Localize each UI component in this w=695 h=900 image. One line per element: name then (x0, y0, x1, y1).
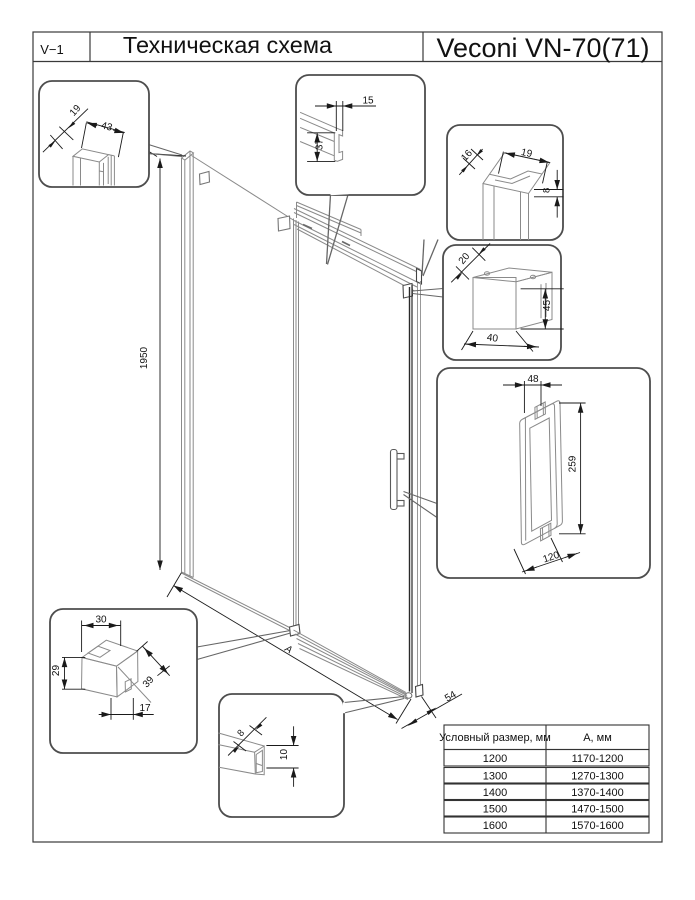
svg-text:259: 259 (568, 455, 579, 472)
svg-text:А, мм: А, мм (583, 732, 612, 744)
svg-text:Veconi VN-70(71): Veconi VN-70(71) (436, 33, 649, 63)
svg-text:1170-1200: 1170-1200 (572, 753, 624, 765)
svg-text:15: 15 (362, 96, 374, 107)
svg-text:8: 8 (542, 188, 553, 193)
svg-text:10: 10 (279, 749, 290, 761)
svg-text:V−1: V−1 (40, 42, 64, 57)
svg-text:1600: 1600 (483, 820, 507, 832)
svg-text:29: 29 (51, 665, 62, 677)
svg-text:37: 37 (315, 139, 326, 151)
svg-text:48: 48 (527, 374, 539, 385)
svg-text:17: 17 (139, 703, 151, 714)
svg-text:1400: 1400 (483, 787, 507, 799)
svg-text:1270-1300: 1270-1300 (571, 771, 624, 783)
svg-text:1300: 1300 (483, 771, 507, 783)
svg-text:30: 30 (95, 615, 107, 626)
svg-text:1500: 1500 (483, 804, 507, 816)
svg-text:1200: 1200 (483, 753, 507, 765)
svg-text:40: 40 (486, 332, 499, 345)
svg-text:1570-1600: 1570-1600 (571, 820, 624, 832)
svg-text:1950: 1950 (139, 346, 150, 369)
svg-text:1370-1400: 1370-1400 (571, 787, 624, 799)
svg-text:45: 45 (542, 300, 553, 312)
svg-text:Техническая схема: Техническая схема (123, 32, 333, 58)
svg-text:Условный размер, мм: Условный размер, мм (439, 732, 551, 744)
svg-text:1470-1500: 1470-1500 (571, 804, 624, 816)
